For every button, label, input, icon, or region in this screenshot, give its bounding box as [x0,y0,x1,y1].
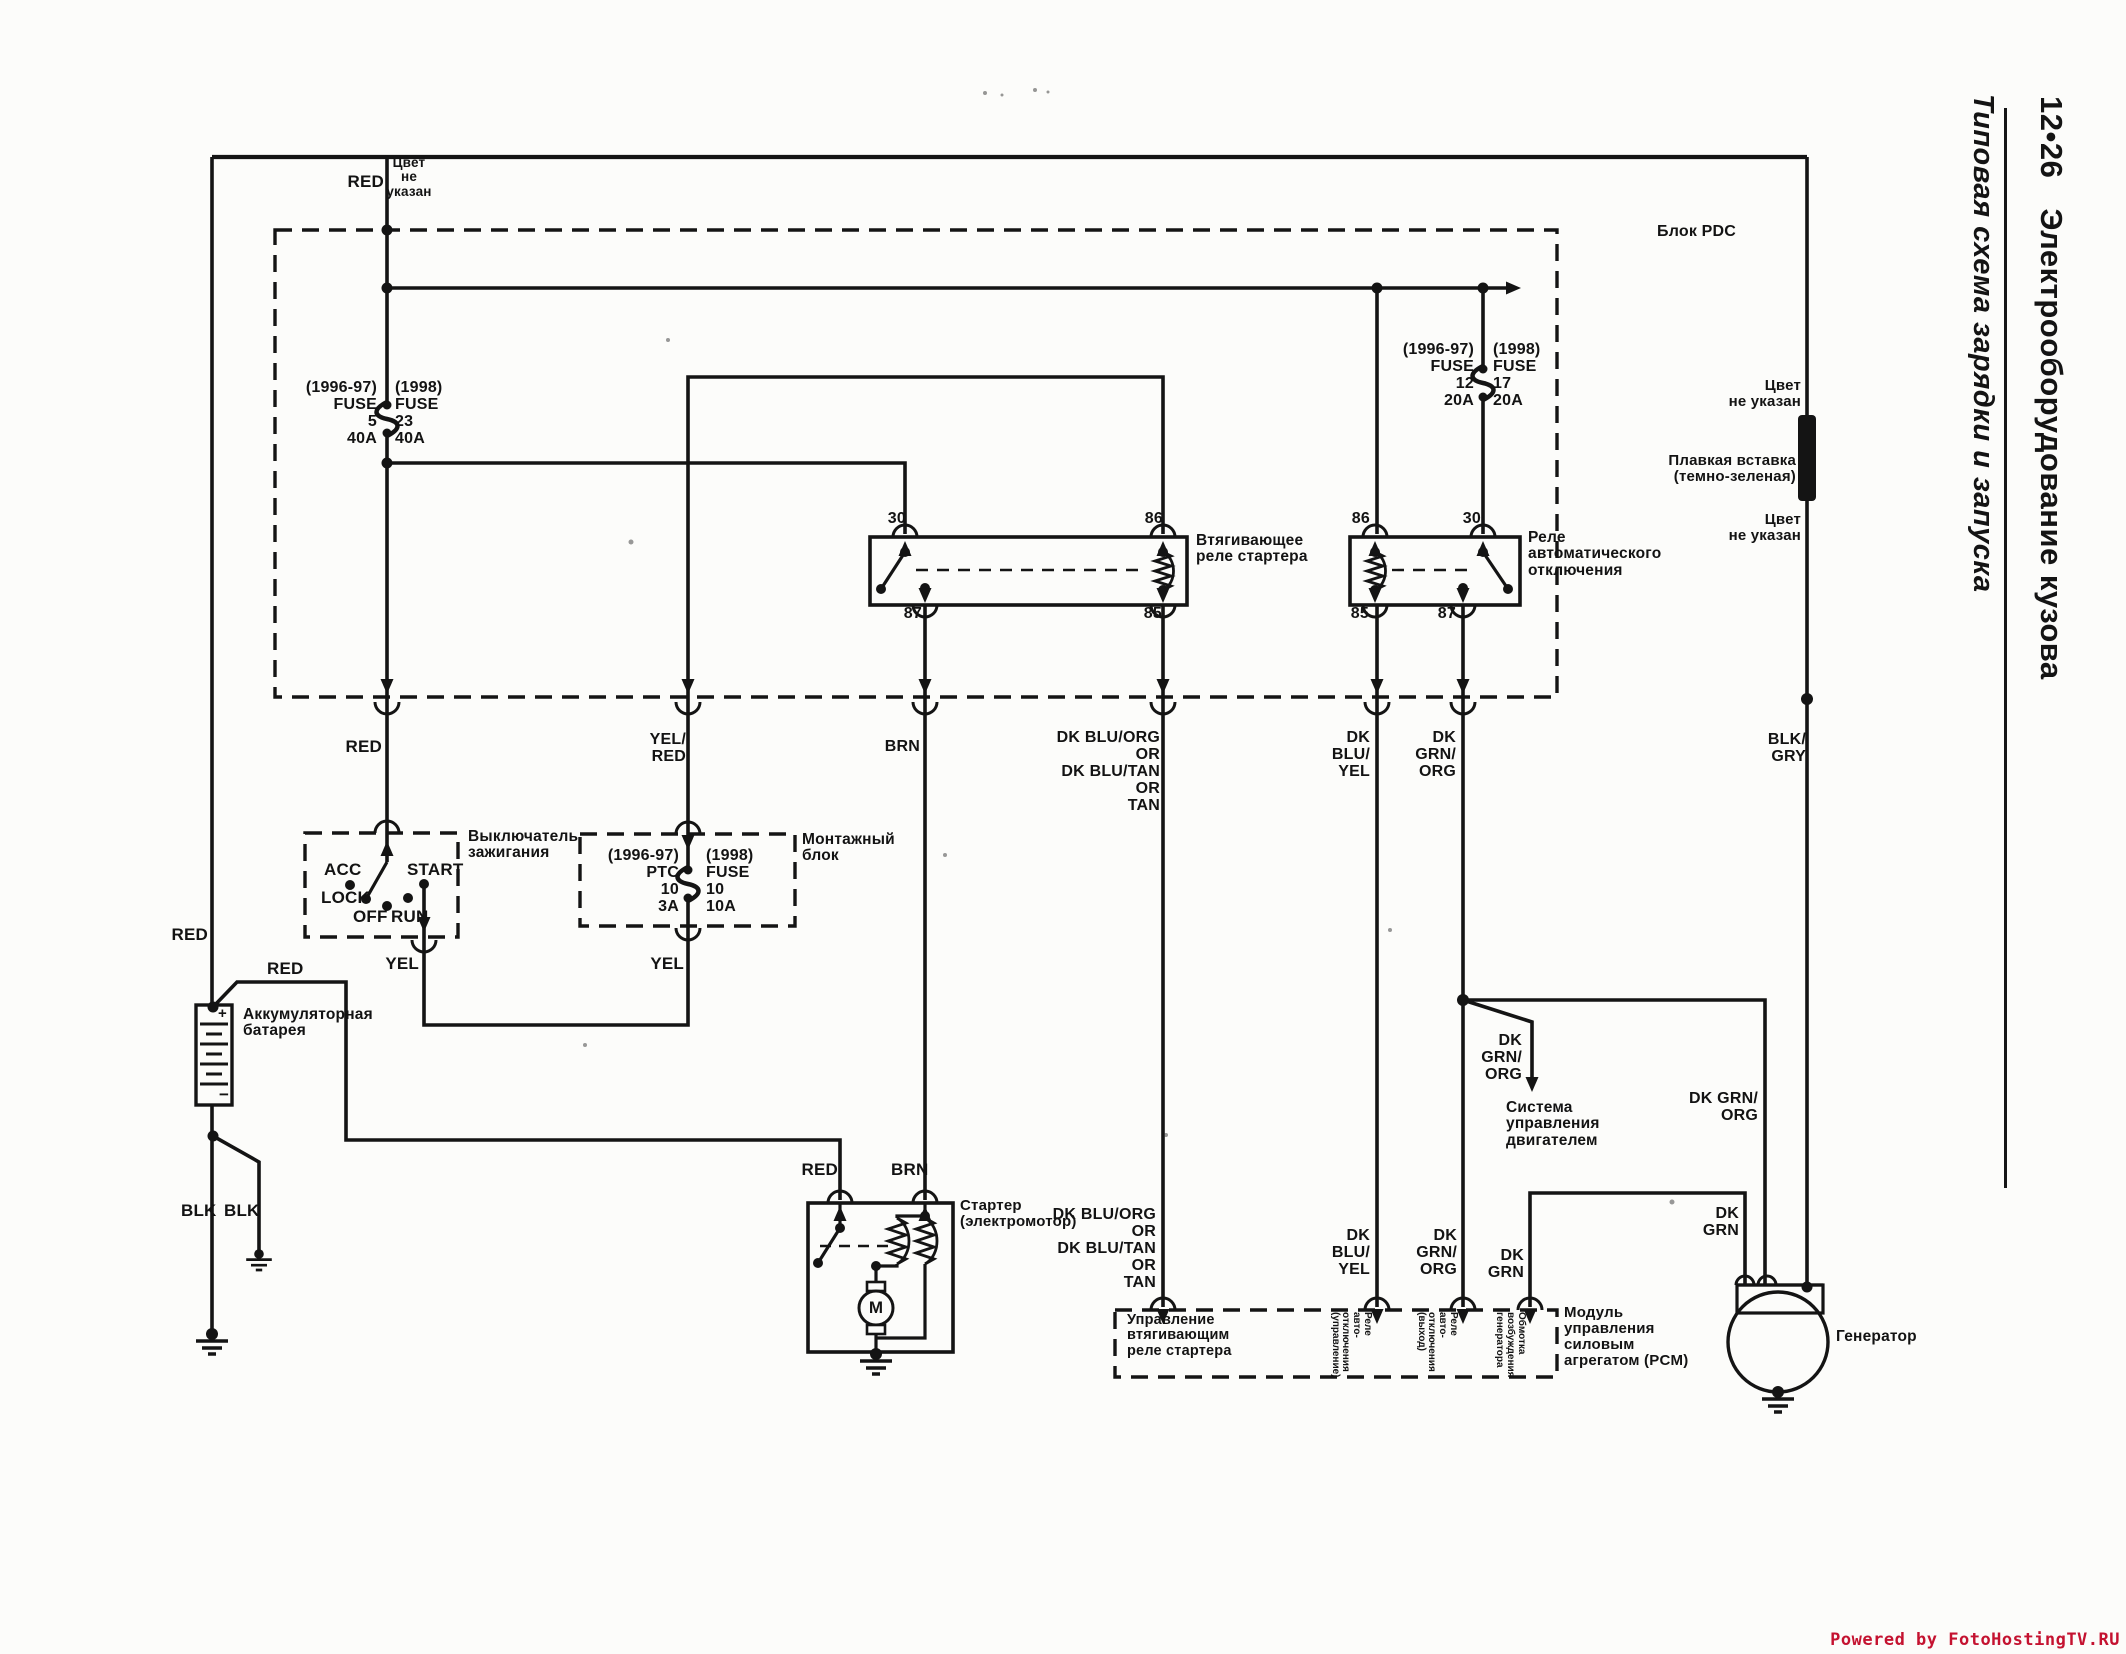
watermark: Powered by FotoHostingTV.RU [1830,1630,2120,1650]
battery-label: Аккумуляторная батарея [243,1007,373,1040]
wire-label-blk-1: BLK [181,1202,217,1220]
asd-relay [1350,525,1520,617]
wire-label-dk-grn-2: DK GRN [1703,1206,1739,1240]
asd-relay-label: Реле автоматического отключения [1528,530,1661,579]
ignition-pos-lock: LOCK [321,889,370,907]
generator-label: Генератор [1836,1329,1917,1345]
arrow-pdc-branch-end [1506,282,1521,295]
relay2-pin-86: 86 [1352,511,1370,528]
junctions [382,225,1814,1007]
wire-label-yel-start: YEL [385,955,419,973]
wires [212,157,1807,1332]
wire-label-yel-block: YEL [650,955,684,973]
wire-label-dk-grn-org-1: DK GRN/ ORG [1415,730,1456,781]
page-number: 12•26 [2034,96,2069,178]
ignition-pos-acc: ACC [324,861,361,879]
page-header: 12•26Электрооборудование кузова [2034,96,2068,680]
wire-label-red-top: RED [348,173,385,191]
page-title: Электрооборудование кузова [2034,208,2069,679]
schematic-canvas [0,0,2126,1654]
wire-label-dk-blu-1: DK BLU/ORG OR DK BLU/TAN OR TAN [1057,730,1160,815]
battery-plus-sign: + [218,1006,227,1022]
arrow-engine-mgmt [1526,1077,1539,1092]
wire-label-red-battery: RED [267,960,304,978]
pcm-in-gen-field: Обмотка возбуждения генератора [1494,1312,1526,1378]
wire-label-brn: BRN [885,739,920,756]
battery [196,1002,232,1142]
header-divider [2004,108,2007,1188]
relay2-pin-87: 87 [1438,606,1456,623]
pcm-in-starter-relay: Управление втягивающим реле стартера [1127,1313,1232,1359]
wire-yel-red [424,377,1163,1025]
starter-relay-label: Втягивающее реле стартера [1196,533,1308,566]
fuse-symbol-asd [1473,365,1494,402]
fusible-link-bar [1798,415,1816,501]
relay1-pin-86: 86 [1145,511,1163,528]
pdc-label: Блок PDC [1657,224,1736,241]
starter-relay [870,525,1187,617]
motor-symbol: M [860,1299,892,1317]
wiring-diagram-page: RED Цвет не указан Блок PDC (1996-97) FU… [0,0,2126,1654]
wire-label-color-na-top: Цвет не указан [384,156,434,199]
page-subtitle: Типовая схема зарядки и запуска [1966,94,1998,593]
battery-minus-sign: − [219,1086,229,1104]
wire-label-dk-grn-org-2: DK GRN/ ORG [1481,1033,1522,1084]
ground-battery-main [196,1328,228,1354]
pcm-in-asd-control: Реле авто- отключения (управление) [1329,1312,1372,1378]
ignition-pos-off: OFF [353,908,388,926]
fusible-link-label: Плавкая вставка (темно-зеленая) [1668,453,1796,485]
ignition-pos-start: START [407,861,463,879]
starter-red-label: RED [802,1161,839,1179]
wire-to-relay1-30 [387,463,905,534]
ground-battery-aux [246,1249,272,1270]
fuse-asd-right-label: (1998) FUSE 17 20A [1493,342,1540,410]
ignition-pos-run: RUN [391,908,428,926]
fuse-main-left-label: (1996-97) FUSE 5 40A [306,380,377,448]
fuse-symbol-ptc [678,866,699,903]
color-na-upper: Цвет не указан [1729,378,1801,410]
wire-label-yel-red: YEL/ RED [650,732,686,766]
wire-label-dk-blu-yel-2: DK BLU/ YEL [1332,1228,1370,1279]
wire-label-dk-blu-yel-1: DK BLU/ YEL [1332,730,1370,781]
relay1-pin-30: 30 [888,511,906,528]
wire-blk-ground2 [213,1136,259,1250]
relay1-pin-85: 85 [1144,606,1162,623]
wire-label-blk-gry: BLK/ GRY [1768,732,1806,766]
wire-label-dk-grn-org-4: DK GRN/ ORG [1689,1091,1758,1125]
wire-label-blk-2: BLK [224,1202,260,1220]
relay2-pin-30: 30 [1463,511,1481,528]
mounting-block-label: Монтажный блок [802,832,895,865]
wire-label-red-left: RED [172,926,209,944]
fuse-asd-left-label: (1996-97) FUSE 12 20A [1403,342,1474,410]
mounting-entry-arrow [682,835,695,850]
wire-label-dk-grn-org-3: DK GRN/ ORG [1416,1228,1457,1279]
ptc-fuse-left-label: (1996-97) PTC 10 3A [608,848,679,916]
wire-label-red-feed: RED [346,738,383,756]
starter-brn-label: BRN [891,1161,928,1179]
pcm-in-asd-output: Реле авто- отключения (выход) [1415,1312,1458,1378]
fuse-main-right-label: (1998) FUSE 23 40A [395,380,442,448]
wire-label-dk-blu-2: DK BLU/ORG OR DK BLU/TAN OR TAN [1053,1207,1156,1292]
generator [1728,1276,1828,1412]
relay2-pin-85: 85 [1351,606,1369,623]
ptc-fuse-right-label: (1998) FUSE 10 10A [706,848,753,916]
starter-motor [808,1191,953,1374]
engine-mgmt-label: Система управления двигателем [1506,1100,1600,1149]
relay1-pin-87: 87 [904,606,922,623]
wire-label-dk-grn-1: DK GRN [1488,1248,1524,1282]
ignition-label: Выключатель зажигания [468,829,578,862]
pcm-label: Модуль управления силовым агрегатом (PCM… [1564,1305,1688,1369]
color-na-lower: Цвет не указан [1729,512,1801,544]
